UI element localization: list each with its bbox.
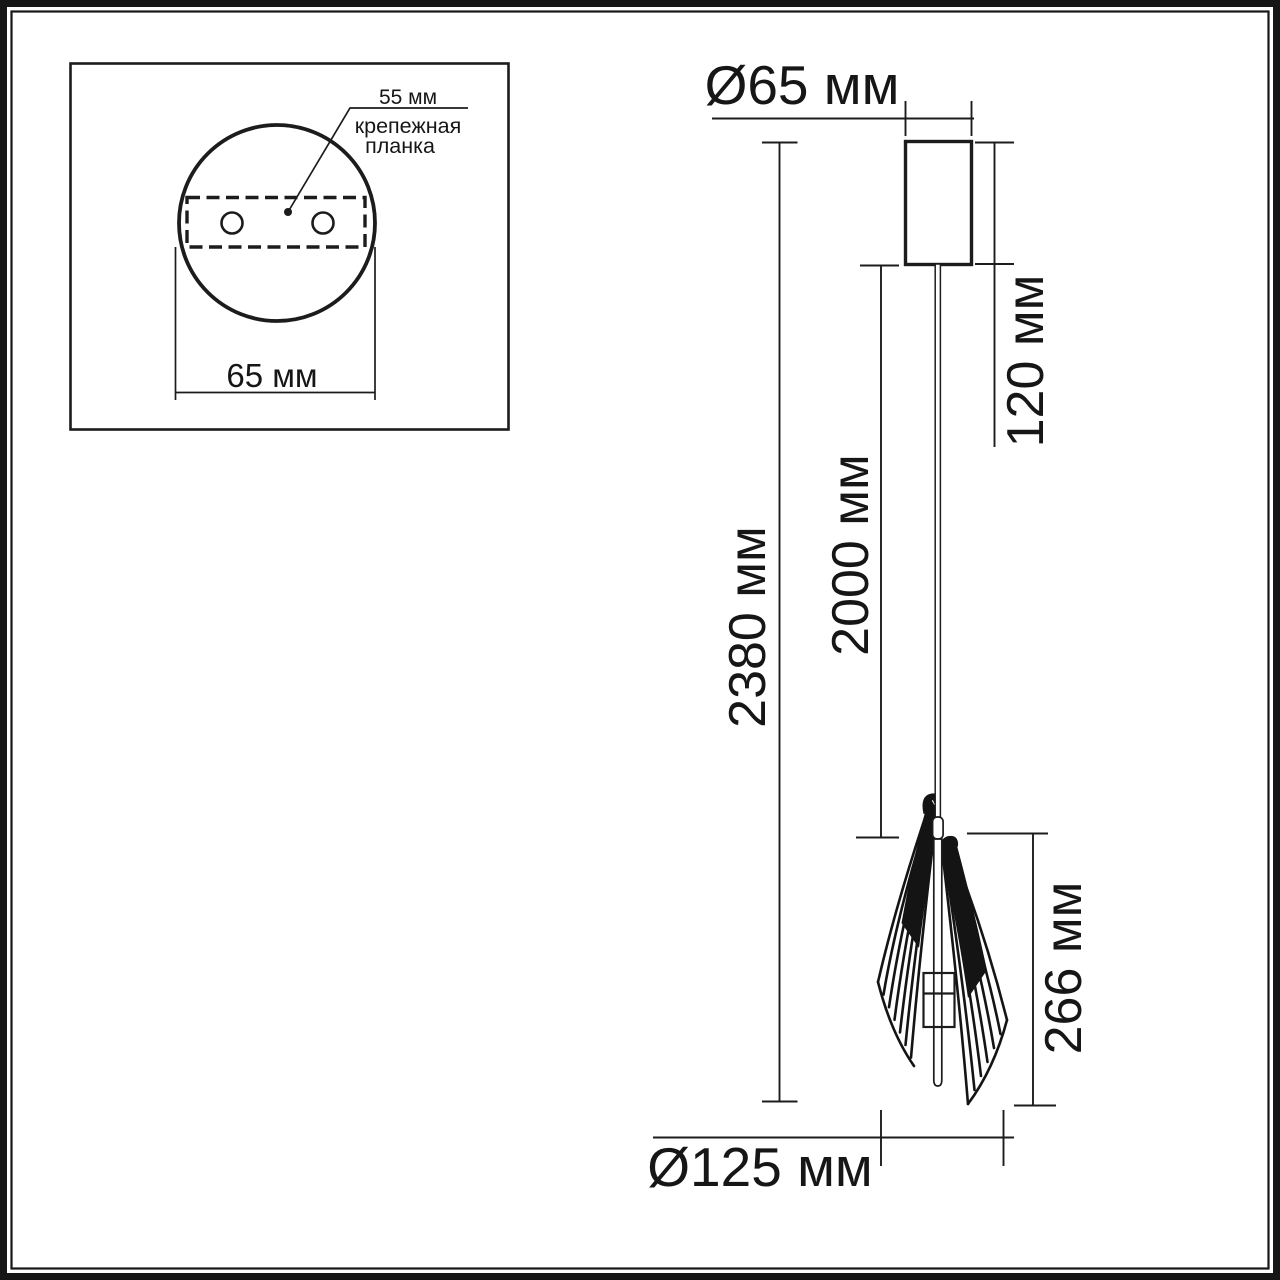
lamp-rod <box>934 839 942 1086</box>
technical-drawing-page: 55 мм крепежная планка 65 мм <box>0 0 1280 1280</box>
page-frame <box>4 4 1277 1277</box>
inset-spacing-label: 55 мм <box>379 86 437 109</box>
canopy-height-label: 120 мм <box>997 275 1055 448</box>
inset-labels: 55 мм крепежная планка 65 мм <box>226 86 461 394</box>
screw-hole-right <box>313 213 334 234</box>
cable-connector <box>933 817 944 839</box>
shade-diameter-label: Ø125 мм <box>647 1136 872 1198</box>
screw-hole-left <box>222 213 243 234</box>
canopy-diameter-label: Ø65 мм <box>705 54 900 116</box>
frame-inner-border <box>12 12 1269 1269</box>
ceiling-cup-circle <box>179 125 375 321</box>
shade-height-label: 266 мм <box>1035 882 1093 1055</box>
canopy <box>906 142 972 265</box>
suspension-cable <box>935 264 940 822</box>
dimension-labels: Ø65 мм 120 мм 2380 мм 2000 мм 266 мм Ø12… <box>647 54 1093 1198</box>
frame-outer-border <box>4 4 1277 1277</box>
drawing-canvas: 55 мм крепежная планка 65 мм <box>0 0 1280 1280</box>
mounting-bar-label-line2: планка <box>365 134 435 158</box>
cable-length-label: 2000 мм <box>822 454 880 656</box>
inset-width-label: 65 мм <box>226 357 317 394</box>
shade-right-wing <box>940 836 1007 1104</box>
total-height-label: 2380 мм <box>719 526 777 728</box>
mounting-bar-dashed-rect <box>187 198 365 248</box>
